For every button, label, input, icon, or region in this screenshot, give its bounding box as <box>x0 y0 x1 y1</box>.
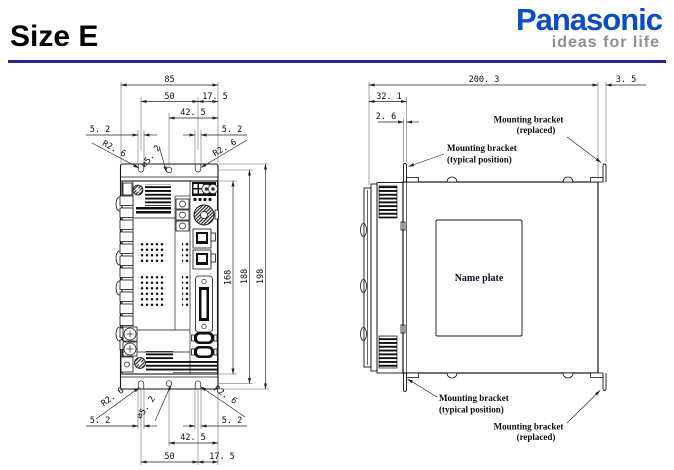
annotation-bracket-replaced-bot-line1: Mounting bracket <box>494 422 564 432</box>
dim-front-hole-span-top: 50 <box>164 92 174 102</box>
dim-front-center-offset-top: 42. 5 <box>180 108 206 118</box>
dim-front-face-height: 168 <box>224 270 234 285</box>
dim-front-slot-radius-topright: R2. 6 <box>211 137 238 159</box>
annotation-bracket-typical-bot-line2: (typical position) <box>439 405 504 415</box>
dim-front-overall-height: 198 <box>256 269 266 284</box>
annotation-bracket-typical-top-line1: Mounting bracket <box>447 143 517 153</box>
annotation-bracket-replaced-top-line1: Mounting bracket <box>494 115 564 125</box>
dim-front-hole-height: 188 <box>240 269 250 284</box>
dim-front-slot-width-botright: 5. 2 <box>222 416 242 426</box>
dim-front-slot-width-topright: 5. 2 <box>222 125 242 135</box>
dim-front-slot-radius-botleft: R2. 6 <box>100 386 127 409</box>
annotation-bracket-typical-bot-line1: Mounting bracket <box>439 393 509 403</box>
side-view-drawing: Name plate <box>361 75 647 442</box>
dim-side-front-depth: 32. 1 <box>376 92 402 102</box>
dim-front-slot-radius-topleft: R2. 6 <box>100 139 127 160</box>
mid-terminal-boxes <box>176 199 189 231</box>
annotation-bracket-typical-top-line2: (typical position) <box>447 155 512 165</box>
annotation-bracket-replaced-top-line2: (replaced) <box>517 125 556 135</box>
dim-front-slot-width-botleft: 5. 2 <box>90 416 110 426</box>
dim-front-center-offset-bot: 42. 5 <box>180 433 206 443</box>
dim-side-depth: 200. 3 <box>469 75 500 85</box>
manual-page: Size E Panasonic ideas for life <box>0 0 674 470</box>
dsub-connector <box>196 276 213 332</box>
name-plate-label: Name plate <box>455 273 504 284</box>
dim-front-overall-width: 85 <box>164 75 174 85</box>
vent-dot-grid <box>138 240 166 263</box>
front-view-drawing: 85 50 17. 5 42. 5 5. 2 5. 2 R2. 6 ⌀5. 2 … <box>86 75 269 465</box>
dim-front-right-offset-bot: 17. 5 <box>209 452 235 462</box>
dim-front-right-offset-top: 17. 5 <box>202 92 228 102</box>
dim-front-hole-dia-bot: ⌀5. 2 <box>135 395 158 422</box>
front-device-face <box>116 181 219 374</box>
side-front-profile <box>361 183 404 374</box>
dim-front-hole-span-bot: 50 <box>164 452 174 462</box>
dim-side-tab-thickness: 2. 6 <box>376 112 396 122</box>
dim-side-bracket-offset: 3. 5 <box>616 75 636 85</box>
technical-drawing: 85 50 17. 5 42. 5 5. 2 5. 2 R2. 6 ⌀5. 2 … <box>0 0 674 470</box>
side-view-dimensions: 200. 3 3. 5 32. 1 2. 6 <box>369 75 646 185</box>
dim-front-slot-width-topleft: 5. 2 <box>90 125 110 135</box>
side-device-body: Name plate <box>401 182 598 373</box>
annotation-bracket-replaced-bot-line2: (replaced) <box>517 432 556 442</box>
